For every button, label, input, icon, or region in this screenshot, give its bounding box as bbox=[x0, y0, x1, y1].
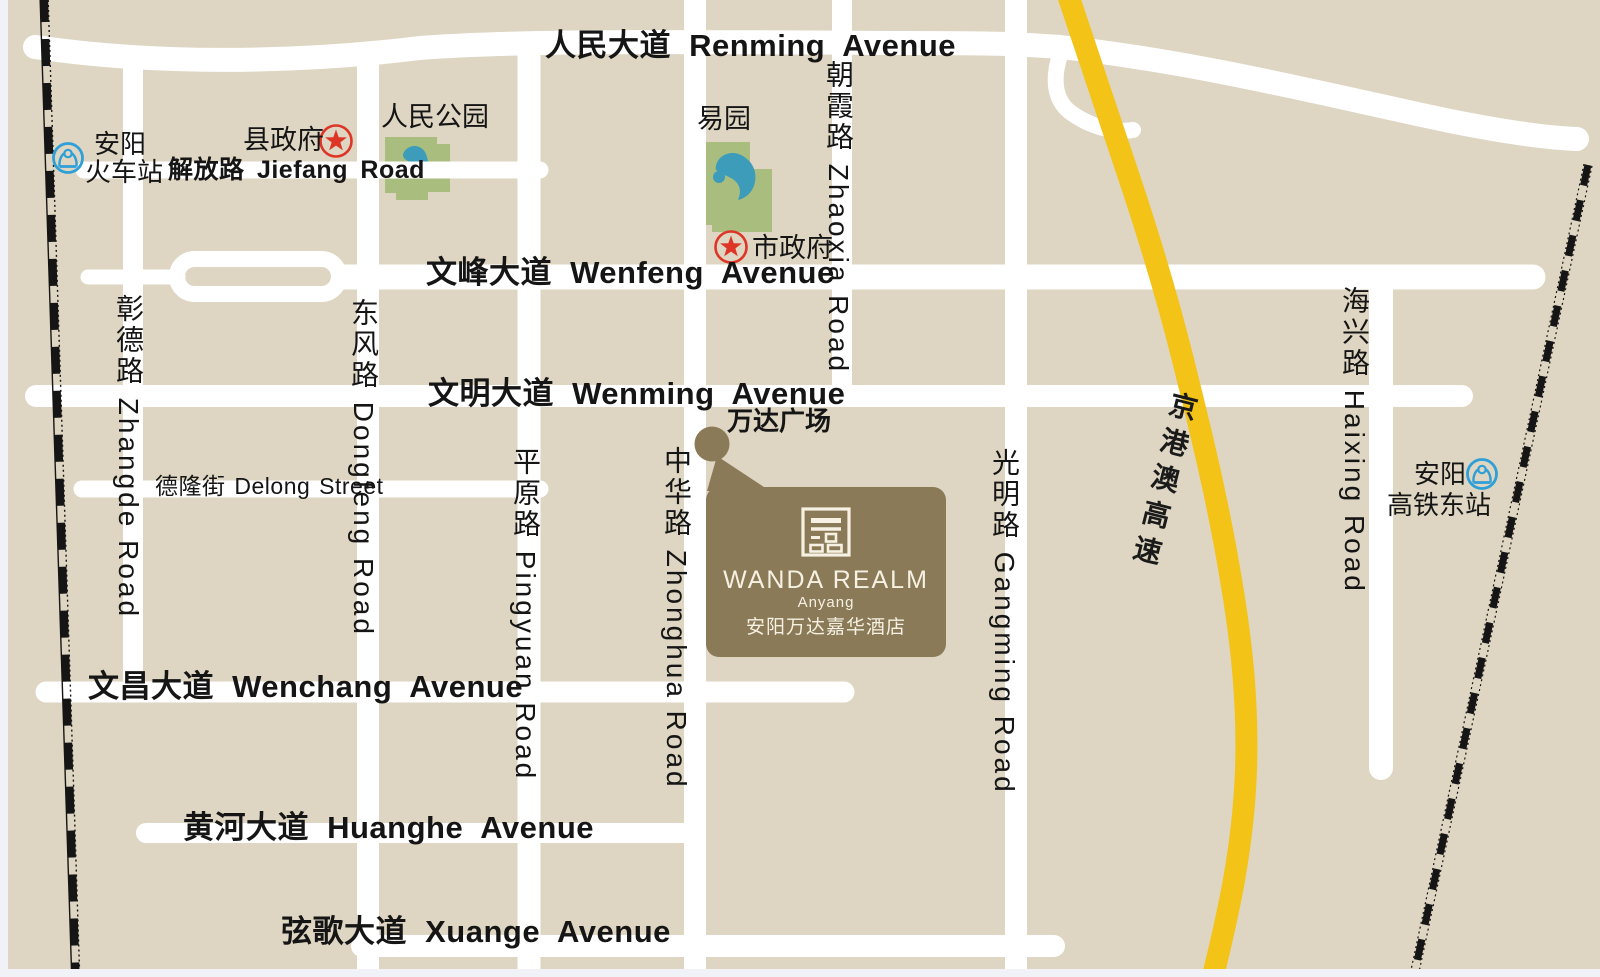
road-label-zhonghua-road: 中华路 Zhonghua Road bbox=[662, 446, 690, 790]
road-label-zhangde-road: 彰德路 Zhangde Road bbox=[114, 294, 142, 619]
map-edge-bottom bbox=[0, 969, 1600, 977]
road-label-wenchang-avenue: 文昌大道 Wenchang Avenue bbox=[88, 671, 523, 704]
railway-station-label-line1: 安阳 bbox=[94, 131, 146, 158]
county-gov-label: 县政府 bbox=[243, 126, 324, 154]
road-label-xuange-avenue: 弦歌大道 Xuange Avenue bbox=[281, 916, 671, 949]
map-edge-left bbox=[0, 0, 8, 977]
hotel-name-chinese: 安阳万达嘉华酒店 bbox=[706, 612, 946, 639]
hsr-station-label-line2: 高铁东站 bbox=[1387, 492, 1491, 519]
wanda-plaza-label: 万达广场 bbox=[727, 408, 831, 435]
yi-garden-pond-small bbox=[713, 171, 725, 183]
anyang-hotel-map: { "colors": { "background": "#ded6c2", "… bbox=[0, 0, 1600, 977]
road-label-pingyuan-road: 平原路 Pingyuan Road bbox=[511, 447, 539, 781]
yi-garden-label: 易园 bbox=[697, 105, 751, 133]
renmin-park-label: 人民公园 bbox=[381, 103, 489, 131]
hsr-station-label-line1: 安阳 bbox=[1414, 461, 1466, 488]
road-label-huanghe-avenue: 黄河大道 Huanghe Avenue bbox=[183, 812, 594, 845]
road-label-renming-avenue: 人民大道 Renming Avenue bbox=[545, 30, 956, 63]
road-label-zhaoxia-road: 朝霞路 Zhaoxia Road bbox=[824, 60, 852, 374]
road-label-haixing-road: 海兴路 Haixing Road bbox=[1340, 286, 1368, 594]
city-gov-label: 市政府 bbox=[752, 234, 833, 262]
road-label-gangming-road: 光明路 Gangming Road bbox=[990, 448, 1018, 795]
hotel-brand-name: WANDA REALM bbox=[706, 566, 946, 595]
road-label-jiefang-road: 解放路 Jiefang Road bbox=[168, 157, 425, 183]
hotel-location-name: Anyang bbox=[706, 594, 946, 611]
railway-station-label-line2: 火车站 bbox=[85, 159, 163, 186]
road-label-dongfeng-road: 东风路 Dongfeng Road bbox=[349, 298, 377, 637]
